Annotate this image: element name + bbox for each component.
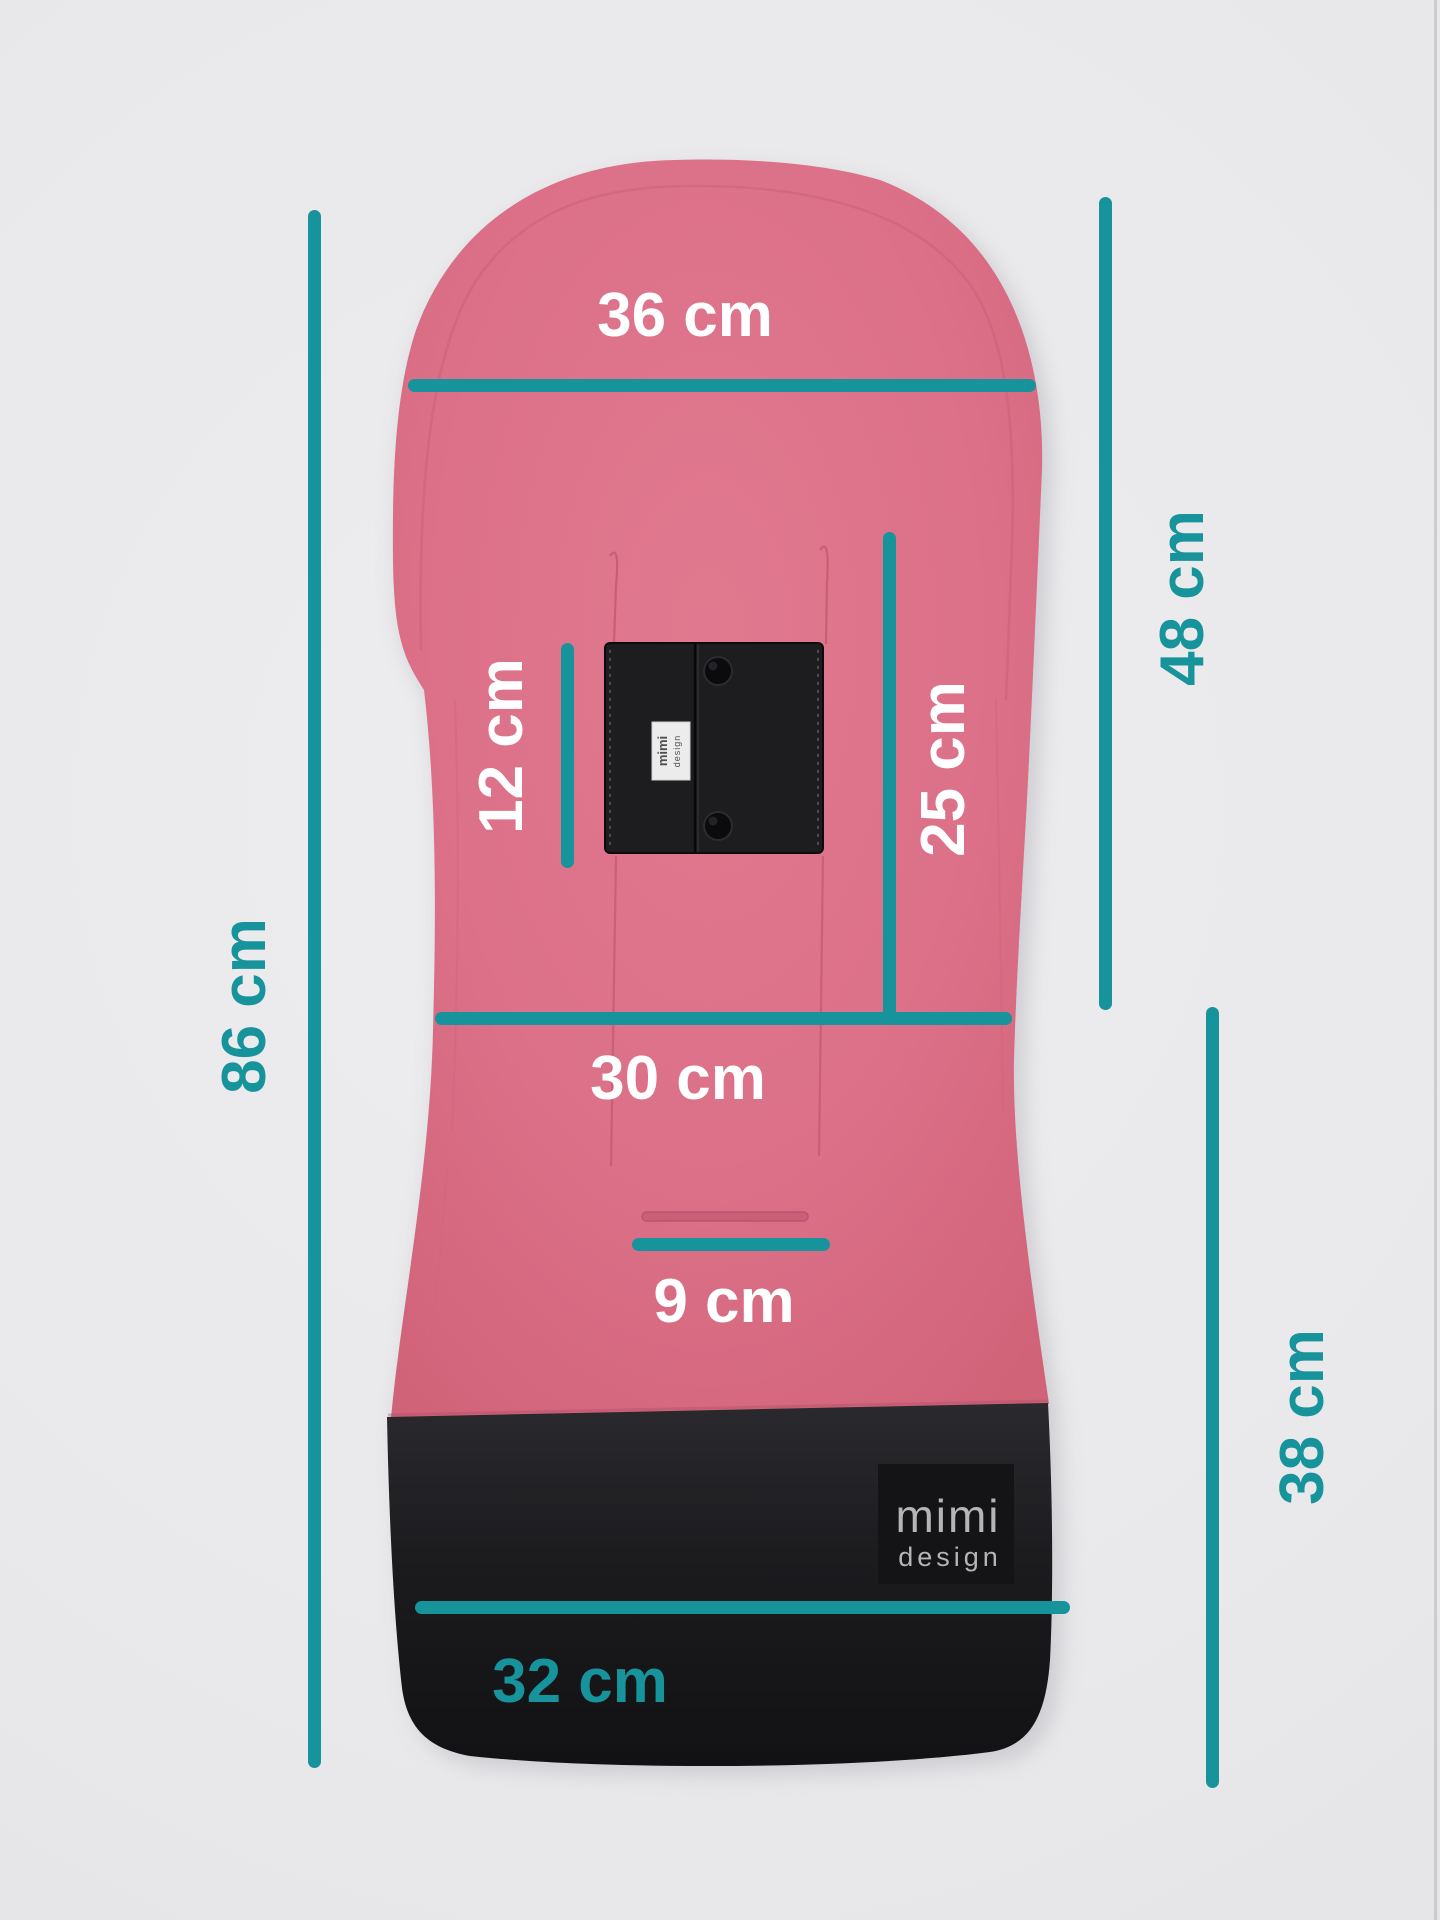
- bottom-logo-line1: mimi: [895, 1490, 1000, 1542]
- dimension-line-bottom-width: [415, 1601, 1070, 1614]
- backdrop-edge-line: [1434, 0, 1437, 1920]
- dimension-label-middle-width: 30 cm: [590, 1048, 766, 1110]
- strap-slot: [642, 1212, 808, 1221]
- dimension-line-patch-height: [561, 643, 574, 868]
- dimension-line-total-height: [308, 210, 321, 1768]
- snap-button-bottom: [704, 812, 732, 840]
- strap-patch: mimi design: [605, 643, 823, 853]
- dimension-label-upper-height: 48 cm: [1152, 510, 1214, 686]
- dimension-label-middle-height: 25 cm: [913, 681, 975, 857]
- dimension-line-upper-height: [1099, 197, 1112, 1010]
- patch-brand-tag-line1: mimi: [655, 736, 670, 766]
- dimension-line-middle-width: [435, 1012, 1012, 1025]
- bottom-black-section: mimi design: [387, 1403, 1052, 1766]
- product-dimension-photo: mimi design mimi design 36 cm 48 cm 12 c…: [0, 0, 1440, 1920]
- dimension-line-lower-height: [1206, 1007, 1219, 1788]
- dimension-label-lower-height: 38 cm: [1272, 1329, 1334, 1505]
- dimension-label-top-width: 36 cm: [597, 285, 773, 347]
- patch-brand-tag-line2: design: [672, 735, 682, 768]
- dimension-line-slot-width: [632, 1238, 830, 1251]
- snap-button-top: [704, 657, 732, 685]
- bottom-black-fabric: [387, 1403, 1052, 1766]
- snap-button-top-highlight: [709, 662, 718, 671]
- snap-button-bottom-highlight: [709, 817, 718, 826]
- dimension-line-top-width: [408, 379, 1036, 392]
- dimension-line-middle-height: [883, 532, 896, 1018]
- dimension-label-patch-height: 12 cm: [471, 658, 533, 834]
- dimension-label-slot-width: 9 cm: [653, 1271, 794, 1333]
- bottom-logo-line2: design: [898, 1542, 1002, 1572]
- dimension-label-bottom-width: 32 cm: [492, 1651, 668, 1713]
- dimension-label-total-height: 86 cm: [214, 918, 276, 1094]
